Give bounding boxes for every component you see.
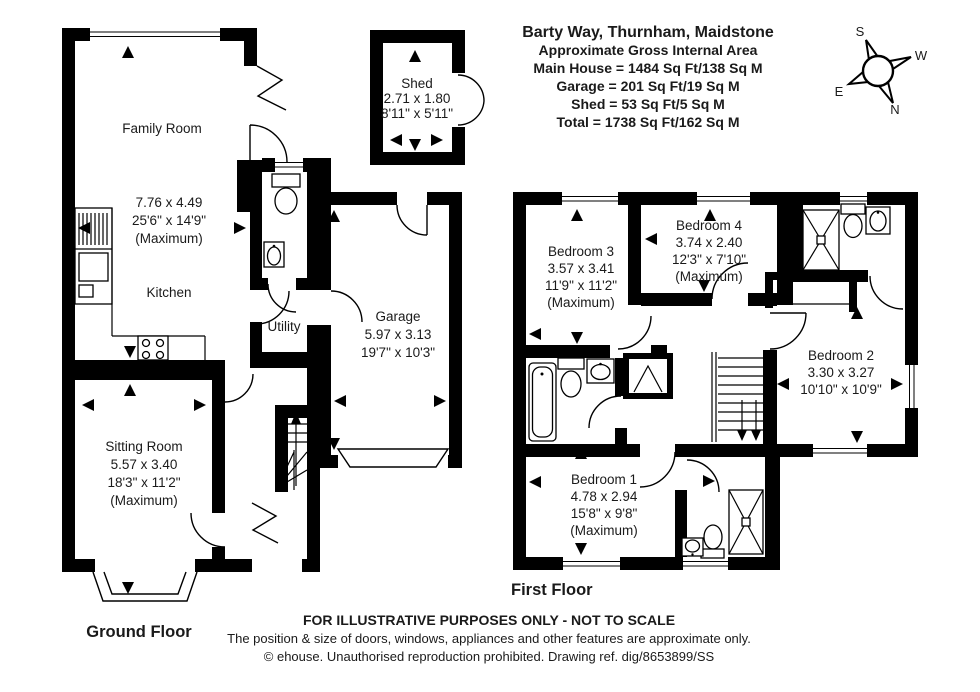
family-room-metric: 7.76 x 4.49 bbox=[136, 195, 203, 210]
door-arc-bedroom2 bbox=[770, 313, 806, 349]
bay-window-opening bbox=[95, 559, 195, 572]
window bbox=[90, 28, 220, 41]
door-arc-wc bbox=[268, 284, 296, 312]
floorplan-drawing: S W E N Barty Way, Thurnham, Maidstone A… bbox=[0, 0, 980, 692]
property-address: Barty Way, Thurnham, Maidstone bbox=[522, 24, 774, 41]
bedroom3-note: (Maximum) bbox=[547, 295, 615, 310]
window bbox=[697, 192, 750, 205]
measure-arrow-icon bbox=[571, 332, 583, 344]
bathroom-fixtures bbox=[529, 358, 614, 441]
measure-arrow-icon bbox=[529, 328, 541, 340]
bedroom1-name: Bedroom 1 bbox=[571, 472, 637, 487]
bedroom4-imperial: 12'3" x 7'10" bbox=[672, 252, 746, 267]
toilet bbox=[272, 174, 300, 187]
toilet bbox=[704, 525, 722, 549]
door-arc-back-door bbox=[250, 125, 287, 162]
bedroom1-metric: 4.78 x 2.94 bbox=[571, 489, 638, 504]
door-arc-ensuite bbox=[870, 276, 903, 309]
utility-name: Utility bbox=[268, 319, 301, 334]
shed-name: Shed bbox=[401, 76, 433, 91]
area-total: Total = 1738 Sq Ft/162 Sq M bbox=[557, 114, 740, 130]
window bbox=[813, 444, 867, 457]
garage-name: Garage bbox=[375, 309, 420, 324]
shed-door-opening bbox=[452, 73, 465, 127]
measure-arrow-icon bbox=[575, 543, 587, 555]
front-door-zigzag bbox=[252, 503, 278, 543]
ground-floor-label: Ground Floor bbox=[86, 623, 192, 641]
bedroom2-name: Bedroom 2 bbox=[808, 348, 874, 363]
bedroom2-imperial: 10'10" x 10'9" bbox=[800, 382, 882, 397]
area-main-house: Main House = 1484 Sq Ft/138 Sq M bbox=[533, 60, 762, 76]
door-arc-bedroom1 bbox=[640, 452, 675, 487]
measure-arrow-icon bbox=[390, 134, 402, 146]
garage-metric: 5.97 x 3.13 bbox=[365, 327, 432, 342]
ensuite-fixtures bbox=[803, 204, 890, 270]
bedroom2-metric: 3.30 x 3.27 bbox=[808, 365, 875, 380]
bedroom4-name: Bedroom 4 bbox=[676, 218, 743, 233]
sitting-room-imperial: 18'3" x 11'2" bbox=[107, 475, 180, 490]
measure-arrow-icon bbox=[645, 233, 657, 245]
measure-arrow-icon bbox=[434, 395, 446, 407]
measure-arrow-icon bbox=[409, 139, 421, 151]
floorplan-page: S W E N Barty Way, Thurnham, Maidstone A… bbox=[0, 0, 980, 692]
sitting-room-metric: 5.57 x 3.40 bbox=[111, 457, 178, 472]
stairs-down-arrow bbox=[737, 430, 747, 441]
compass-south: S bbox=[856, 24, 865, 39]
footer-copyright: © ehouse. Unauthorised reproduction proh… bbox=[264, 649, 715, 664]
door-arc-bedroom3 bbox=[618, 316, 651, 349]
measure-arrow-icon bbox=[122, 46, 134, 58]
window bbox=[905, 365, 918, 408]
door-arc-hall bbox=[225, 374, 253, 402]
compass-west: W bbox=[915, 48, 928, 63]
area-shed: Shed = 53 Sq Ft/5 Sq M bbox=[571, 96, 725, 112]
door-arc-utility-garage bbox=[331, 291, 362, 322]
bedroom1-note: (Maximum) bbox=[570, 523, 638, 538]
measure-arrow-icon bbox=[703, 475, 715, 487]
compass-rose-icon: S W E N bbox=[835, 24, 928, 117]
bedroom4-metric: 3.74 x 2.40 bbox=[676, 235, 743, 250]
family-room-imperial: 25'6" x 14'9" bbox=[132, 213, 206, 228]
wc-fixtures bbox=[264, 174, 300, 267]
kitchen-name: Kitchen bbox=[146, 285, 191, 300]
sitting-room-name: Sitting Room bbox=[105, 439, 182, 454]
window bbox=[275, 158, 303, 172]
shed-imperial: 8'11" x 5'11" bbox=[381, 106, 453, 121]
footer-approximate: The position & size of doors, windows, a… bbox=[227, 631, 751, 646]
measure-arrow-icon bbox=[571, 209, 583, 221]
door-arc-bathroom bbox=[589, 396, 621, 428]
family-room-name: Family Room bbox=[122, 121, 202, 136]
measure-arrow-icon bbox=[777, 378, 789, 390]
bedroom3-imperial: 11'9" x 11'2" bbox=[545, 278, 617, 293]
measure-arrow-icon bbox=[851, 431, 863, 443]
landing-cupboard bbox=[626, 356, 670, 396]
bedroom4-note: (Maximum) bbox=[675, 269, 743, 284]
sitting-room-note: (Maximum) bbox=[110, 493, 178, 508]
door-arc-garage-side bbox=[397, 205, 427, 235]
window bbox=[840, 192, 867, 205]
measure-arrow-icon bbox=[334, 395, 346, 407]
measure-arrow-icon bbox=[529, 476, 541, 488]
toilet bbox=[558, 358, 584, 369]
garage-door bbox=[338, 449, 448, 467]
compass-north: N bbox=[890, 102, 899, 117]
footer-warning: FOR ILLUSTRATIVE PURPOSES ONLY - NOT TO … bbox=[303, 612, 675, 628]
first-floor-stairs bbox=[712, 352, 763, 442]
measure-arrow-icon bbox=[891, 378, 903, 390]
bay-window-inner bbox=[104, 572, 186, 594]
family-room-note: (Maximum) bbox=[135, 231, 203, 246]
compass-east: E bbox=[835, 84, 844, 99]
area-garage: Garage = 201 Sq Ft/19 Sq M bbox=[556, 78, 739, 94]
window bbox=[562, 192, 618, 205]
shower-room-fixtures bbox=[682, 490, 763, 558]
measure-arrow-icon bbox=[234, 222, 246, 234]
title-block: Barty Way, Thurnham, Maidstone Approxima… bbox=[522, 24, 774, 130]
measure-arrow-icon bbox=[124, 384, 136, 396]
stairs-down-arrow bbox=[751, 430, 761, 441]
toilet bbox=[841, 204, 865, 214]
folding-door-zigzag bbox=[257, 66, 286, 110]
measure-arrow-icon bbox=[82, 399, 94, 411]
bedroom3-metric: 3.57 x 3.41 bbox=[548, 261, 615, 276]
footer-disclaimer: FOR ILLUSTRATIVE PURPOSES ONLY - NOT TO … bbox=[227, 612, 751, 664]
measure-arrow-icon bbox=[431, 134, 443, 146]
measure-arrow-icon bbox=[124, 346, 136, 358]
measure-arrow-icon bbox=[122, 582, 134, 594]
front-door-opening bbox=[252, 559, 302, 572]
window bbox=[683, 557, 728, 570]
measure-arrow-icon bbox=[194, 399, 206, 411]
window bbox=[563, 557, 620, 570]
shed-metric: 2.71 x 1.80 bbox=[384, 91, 451, 106]
measure-arrow-icon bbox=[409, 50, 421, 62]
first-floor-label: First Floor bbox=[511, 581, 593, 599]
garage-imperial: 19'7" x 10'3" bbox=[361, 345, 435, 360]
area-subtitle: Approximate Gross Internal Area bbox=[539, 42, 758, 58]
door-arc-sitting-room bbox=[191, 513, 225, 547]
ground-floor-doors bbox=[191, 66, 484, 547]
bedroom3-name: Bedroom 3 bbox=[548, 244, 614, 259]
bedroom1-imperial: 15'8" x 9'8" bbox=[571, 506, 638, 521]
